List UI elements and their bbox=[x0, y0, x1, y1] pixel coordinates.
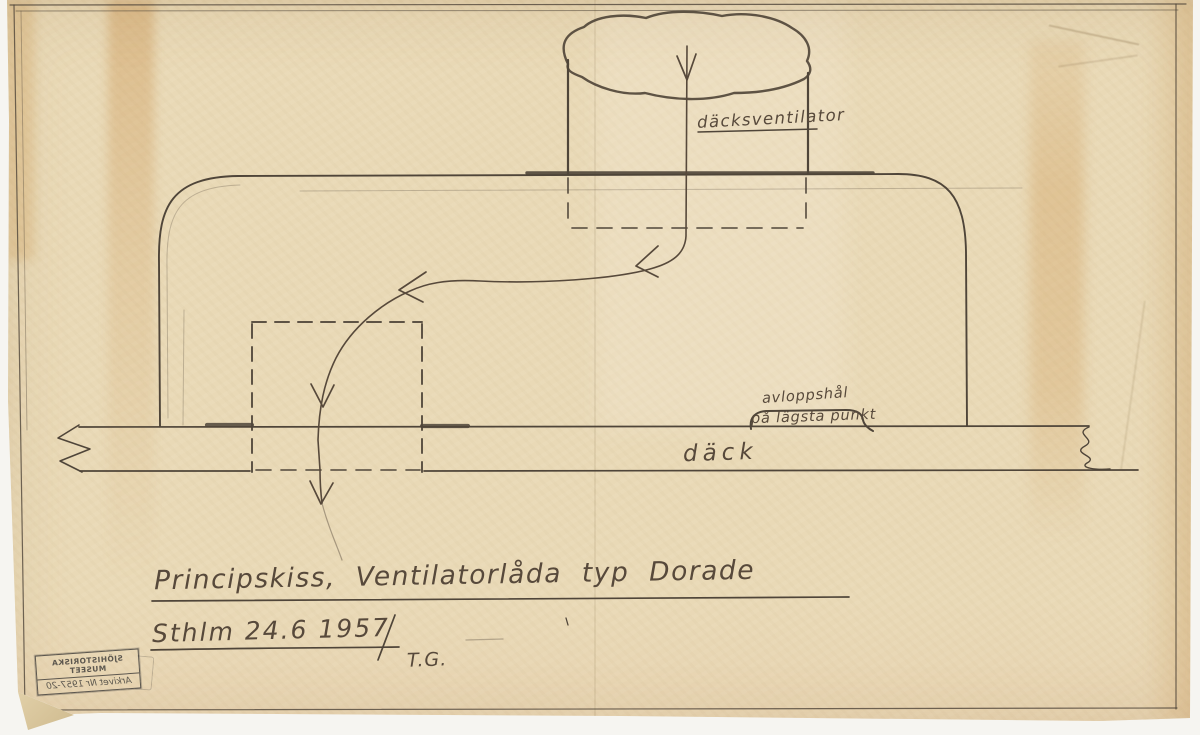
archive-stamp: SJÖHISTORISKA MUSEET Arkivet Nr 1957-20 bbox=[35, 648, 142, 695]
archive-stamp-frame: SJÖHISTORISKA MUSEET Arkivet Nr 1957-20 bbox=[35, 648, 142, 695]
paper-stain bbox=[6, 0, 34, 260]
paper-stain bbox=[0, 600, 1200, 730]
paper-crease bbox=[1058, 54, 1137, 67]
paper-crease bbox=[1049, 24, 1139, 45]
paper-sheet bbox=[0, 0, 1200, 735]
paper-crease bbox=[1120, 301, 1146, 470]
paper-fold-line bbox=[594, 0, 596, 735]
paper-stain bbox=[1030, 40, 1084, 540]
paper-stain bbox=[1146, 0, 1194, 720]
paper-sheen bbox=[596, 0, 846, 430]
stamp-ghost-outline bbox=[135, 655, 155, 690]
scanned-drawing-page: däcksventilator avloppshål på lägsta pun… bbox=[0, 0, 1200, 735]
paper-stain bbox=[108, 0, 154, 580]
